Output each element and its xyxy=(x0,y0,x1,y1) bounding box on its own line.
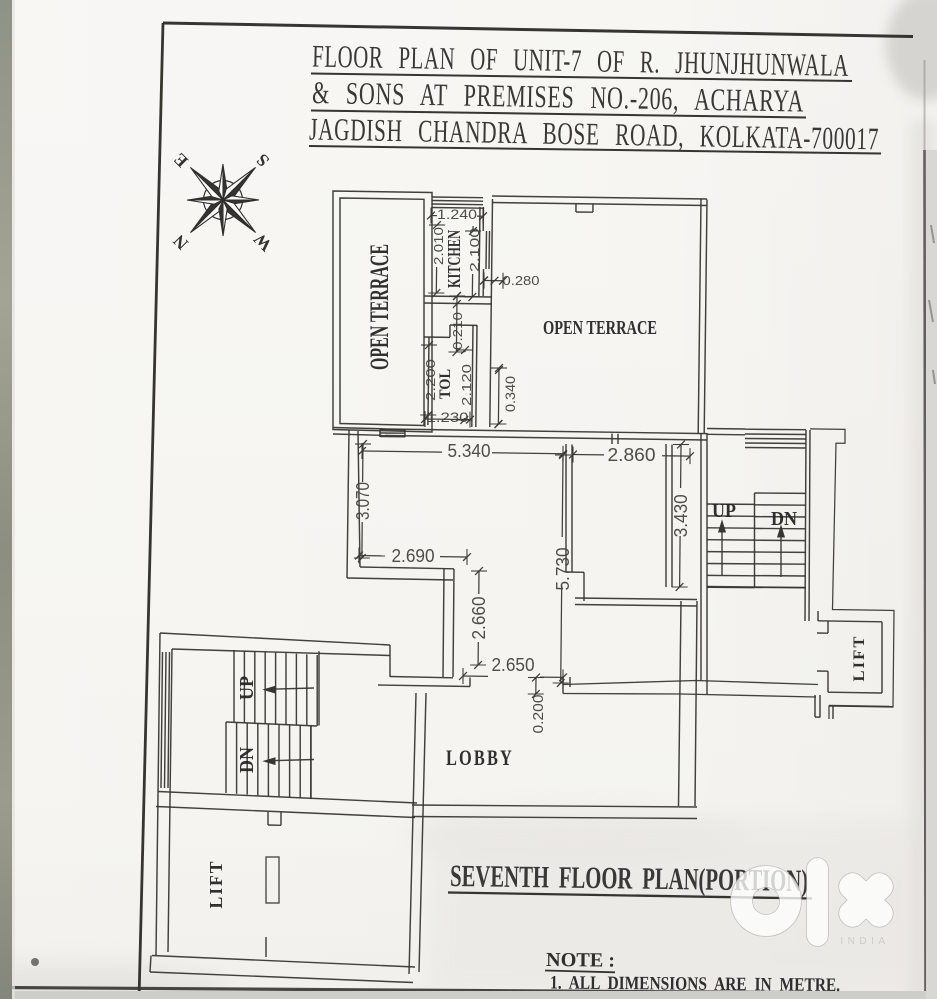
svg-text:1. ALL DIMENSIONS ARE IN METRE: 1. ALL DIMENSIONS ARE IN METRE. xyxy=(550,973,840,997)
svg-text:5.730: 5.730 xyxy=(553,548,573,591)
svg-text:2.860: 2.860 xyxy=(608,445,656,465)
svg-text:2.660: 2.660 xyxy=(469,597,489,640)
svg-text:INDIA: INDIA xyxy=(840,936,889,947)
svg-text:0.200: 0.200 xyxy=(530,695,547,734)
svg-text:LOBBY: LOBBY xyxy=(446,745,514,770)
svg-text:0.340: 0.340 xyxy=(502,376,518,412)
svg-text:2.690: 2.690 xyxy=(392,546,435,566)
svg-text:2.200: 2.200 xyxy=(424,359,438,401)
svg-text:5.340: 5.340 xyxy=(448,441,491,461)
svg-text:TOL: TOL xyxy=(437,369,454,399)
svg-text:1.240: 1.240 xyxy=(437,206,477,222)
svg-text:3.070: 3.070 xyxy=(353,482,373,520)
svg-text:KITCHEN: KITCHEN xyxy=(444,230,464,288)
svg-text:0.210: 0.210 xyxy=(450,312,465,350)
svg-text:DN: DN xyxy=(236,747,258,773)
svg-text:2.120: 2.120 xyxy=(460,364,474,406)
svg-text:0.280: 0.280 xyxy=(503,274,540,288)
svg-text:UP: UP xyxy=(712,500,736,522)
svg-text:1.230: 1.230 xyxy=(427,409,469,425)
svg-text:DN: DN xyxy=(771,508,797,530)
svg-text:UP: UP xyxy=(236,676,258,700)
svg-text:2.650: 2.650 xyxy=(492,655,535,675)
svg-text:LIFT: LIFT xyxy=(851,635,868,682)
svg-text:OPEN TERRACE: OPEN TERRACE xyxy=(365,244,394,370)
svg-text:LIFT: LIFT xyxy=(206,860,226,909)
svg-text:OPEN TERRACE: OPEN TERRACE xyxy=(543,317,657,339)
svg-text:3.430: 3.430 xyxy=(671,494,691,537)
svg-text:NOTE :: NOTE : xyxy=(546,949,615,972)
svg-text:2.010: 2.010 xyxy=(432,227,446,265)
svg-text:2.100: 2.100 xyxy=(468,228,482,272)
